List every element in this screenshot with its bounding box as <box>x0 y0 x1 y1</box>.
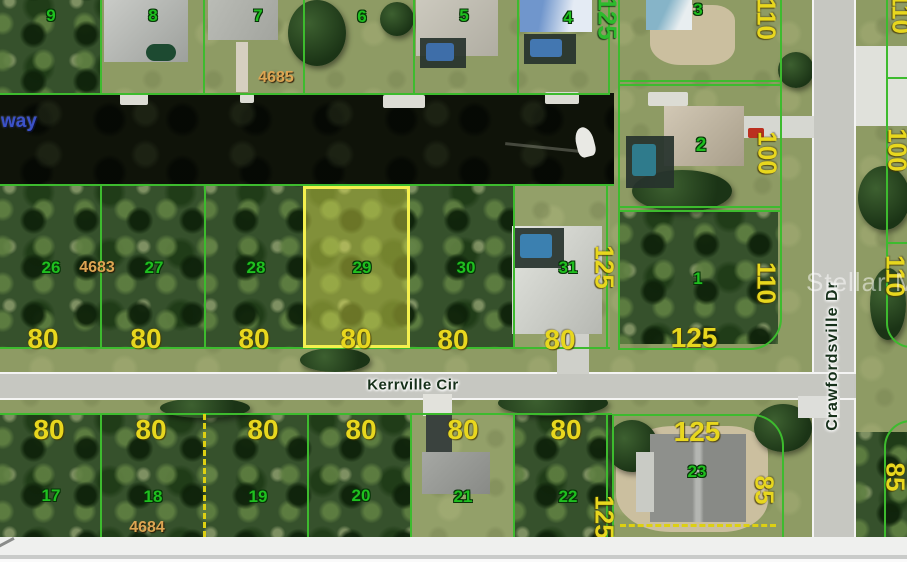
frontage-dim: 125 <box>674 416 721 448</box>
depth-dim: 85 <box>749 476 780 505</box>
depth-dim: 125 <box>589 245 620 288</box>
parcel-line <box>203 0 205 93</box>
depth-dim: 100 <box>752 131 783 174</box>
depth-dim: 110 <box>751 0 782 40</box>
frontage-dim: 125 <box>671 322 718 354</box>
frontage-dim: 80 <box>550 414 581 446</box>
canal-waterway <box>0 93 614 186</box>
frontage-dim: 80 <box>135 414 166 446</box>
depth-dim: 85 <box>880 463 907 492</box>
lot-number: 1 <box>693 269 702 289</box>
lot-number: 9 <box>46 6 55 26</box>
block-number: 4683 <box>79 259 115 277</box>
depth-dim: 100 <box>882 128 907 171</box>
depth-dim: 110 <box>751 262 782 304</box>
lot-number: 30 <box>457 258 476 278</box>
frontage-dim: 80 <box>437 324 468 356</box>
frontage-dim: 80 <box>247 414 278 446</box>
depth-dim: 125 <box>592 0 623 40</box>
driveway-lot7 <box>236 42 248 92</box>
parcel-line-dashed <box>203 414 206 537</box>
lot-number: 8 <box>148 6 157 26</box>
pool-lot31 <box>520 234 552 258</box>
house-lot7 <box>208 0 278 40</box>
pool-lot5 <box>426 43 454 61</box>
lot-number: 4 <box>563 8 572 28</box>
lot-number: 6 <box>357 7 366 27</box>
lot-number: 22 <box>559 487 578 507</box>
frontage-dim: 80 <box>340 323 371 355</box>
tree-canopy <box>778 52 814 88</box>
lot-number: 20 <box>352 486 371 506</box>
parcel-line <box>100 414 102 537</box>
parcel-line <box>517 0 519 93</box>
pool-lot8 <box>146 44 176 61</box>
lot-number: 17 <box>42 486 61 506</box>
depth-dim: 125 <box>589 495 620 537</box>
lot-number: 5 <box>459 6 468 26</box>
lot-number: 23 <box>688 462 707 482</box>
shoreline-north <box>0 93 610 95</box>
lot-number-highlighted: 29 <box>353 258 372 278</box>
waterway-label: way <box>1 111 37 133</box>
frontage-dim: 80 <box>345 414 376 446</box>
parcel-line <box>410 414 412 537</box>
tree-canopy <box>288 0 346 66</box>
row-line-road-south <box>0 413 612 415</box>
frontage-dim: 80 <box>238 323 269 355</box>
block-number: 4685 <box>258 69 294 87</box>
block-number: 4684 <box>129 519 165 537</box>
boat-lift <box>383 95 425 108</box>
easement-line-dashed <box>620 524 776 527</box>
frontage-dim: 80 <box>130 323 161 355</box>
parcel-line <box>100 0 102 93</box>
frontage-dim: 80 <box>33 414 64 446</box>
frontage-dim: 80 <box>27 323 58 355</box>
lot-number: 21 <box>454 487 473 507</box>
lot-number: 7 <box>253 6 262 26</box>
lot-number: 28 <box>247 258 266 278</box>
cursor-artifact <box>0 537 15 548</box>
parcel-line <box>513 186 515 348</box>
parcel-line <box>303 0 305 93</box>
lot-number: 31 <box>559 258 578 278</box>
lot-number: 3 <box>693 0 702 20</box>
parcel-line <box>886 77 907 79</box>
parcel-line <box>204 186 206 348</box>
listing-photo-viewer: 9 8 7 6 5 4 3 2 1 26 27 28 29 30 31 17 1… <box>0 0 907 562</box>
lot-number: 26 <box>42 258 61 278</box>
frontage-dim: 80 <box>544 324 575 356</box>
frontage-dim: 80 <box>447 414 478 446</box>
tree-canopy <box>380 2 414 36</box>
aerial-parcel-map[interactable]: 9 8 7 6 5 4 3 2 1 26 27 28 29 30 31 17 1… <box>0 0 907 537</box>
mls-watermark: Stellar MLS <box>806 267 907 298</box>
depth-dim: 110 <box>886 0 907 34</box>
lot-number: 27 <box>145 258 164 278</box>
parcel-line <box>513 414 515 537</box>
parcel-line <box>886 242 907 244</box>
parcel-line <box>307 414 309 537</box>
lot-number: 18 <box>144 487 163 507</box>
viewer-bottom-bar <box>0 537 907 562</box>
lot-number: 19 <box>249 487 268 507</box>
dock-2 <box>240 94 254 103</box>
parcel-line <box>413 0 415 93</box>
street-label-kerrville: Kerrville Cir <box>367 377 459 394</box>
lot-number: 2 <box>696 135 707 157</box>
pool-lot4 <box>530 39 562 57</box>
house-lot4 <box>520 0 592 32</box>
street-label-crawfordsville: Crawfordsville Dr <box>824 281 842 430</box>
